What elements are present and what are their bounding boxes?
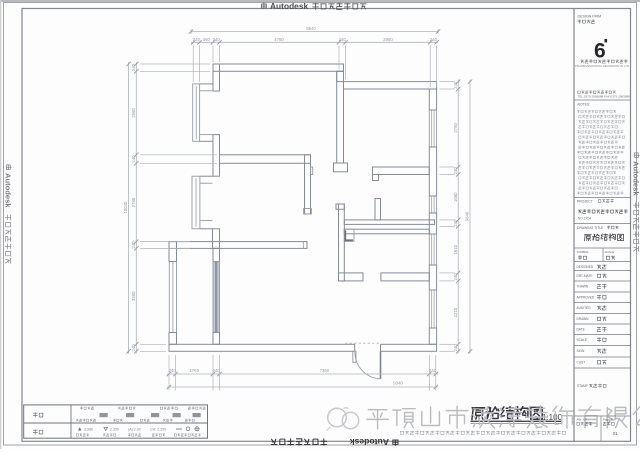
svg-text:CUST: CUST [577,360,586,364]
svg-text:SYMBOL: SYMBOL [577,250,590,254]
svg-text:DESIGNED: DESIGNED [577,265,594,269]
svg-text:SIGN: SIGN [577,349,585,353]
svg-text:Autodesk: Autodesk [4,173,13,208]
svg-text:DRAWN: DRAWN [577,317,590,321]
svg-text:7360: 7360 [320,368,330,373]
svg-text:DATE: DATE [577,327,585,331]
svg-text:240: 240 [131,63,136,71]
svg-text:3360: 3360 [131,291,136,301]
svg-text:APPROVED: APPROVED [577,295,595,299]
svg-text:240: 240 [339,37,347,42]
svg-text:240: 240 [453,81,458,89]
svg-text:9340: 9340 [393,381,403,386]
svg-text:THAWN: THAWN [577,284,589,288]
svg-text:2950: 2950 [383,37,393,42]
svg-text:240: 240 [131,241,136,249]
svg-text:2780: 2780 [131,197,136,207]
svg-text:6: 6 [594,40,606,63]
svg-text:STAMP: STAMP [577,384,588,388]
svg-text:2960: 2960 [131,108,136,118]
svg-text:Page No.: Page No. [603,418,616,422]
svg-text:NO.2X04: NO.2X04 [578,217,591,221]
svg-text:PINGDINGSHAN BOTAO DECORATION: PINGDINGSHAN BOTAO DECORATION CO.,LTD [575,65,629,68]
svg-text:AUDITED: AUDITED [577,306,592,310]
svg-text:240: 240 [430,37,438,42]
svg-text:AW. NO: AW. NO [577,418,588,422]
svg-text:240: 240 [453,273,458,281]
svg-text:PROJECT: PROJECT [577,200,593,204]
svg-text:1610: 1610 [453,244,458,254]
svg-text:9640: 9640 [465,211,470,221]
svg-text:NOTES:: NOTES: [578,103,591,107]
svg-text:01: 01 [613,431,618,436]
svg-text:2.350: 2.350 [110,428,119,432]
svg-text:Autodesk: Autodesk [350,437,389,447]
svg-text:TEL:0375-2965888 FAX:0375-296: TEL:0375-2965888 FAX:0375-2965888 [578,95,631,99]
svg-text:4760: 4760 [274,37,284,42]
svg-text:Autodesk: Autodesk [270,1,309,11]
svg-text:Autodesk: Autodesk [632,161,640,196]
svg-text:2790: 2790 [453,123,458,133]
svg-text:DRAWING TITLE: DRAWING TITLE [577,226,604,230]
svg-text:(A) 2.00: (A) 2.00 [128,428,141,432]
svg-text:1760: 1760 [189,368,199,373]
svg-text:240: 240 [453,344,458,352]
svg-text:240: 240 [193,37,201,42]
svg-text:2210: 2210 [453,307,458,317]
svg-text:2.380: 2.380 [84,428,93,432]
svg-text:9540: 9540 [306,26,316,31]
svg-text:SCALE: SCALE [577,338,587,342]
svg-text:240: 240 [453,167,458,175]
svg-text:1660: 1660 [453,192,458,202]
svg-text:240: 240 [131,155,136,163]
svg-text:240: 240 [213,37,221,42]
svg-text:DESIGN FIRM: DESIGN FIRM [578,15,602,19]
svg-text:SCALE: SCALE [605,250,615,254]
svg-text:10040: 10040 [123,201,128,214]
svg-text:240: 240 [131,344,136,352]
svg-text:CH: 2.350: CH: 2.350 [150,428,166,432]
svg-text:460: 460 [203,37,211,42]
svg-text:DRT-MATE: DRT-MATE [577,274,593,278]
